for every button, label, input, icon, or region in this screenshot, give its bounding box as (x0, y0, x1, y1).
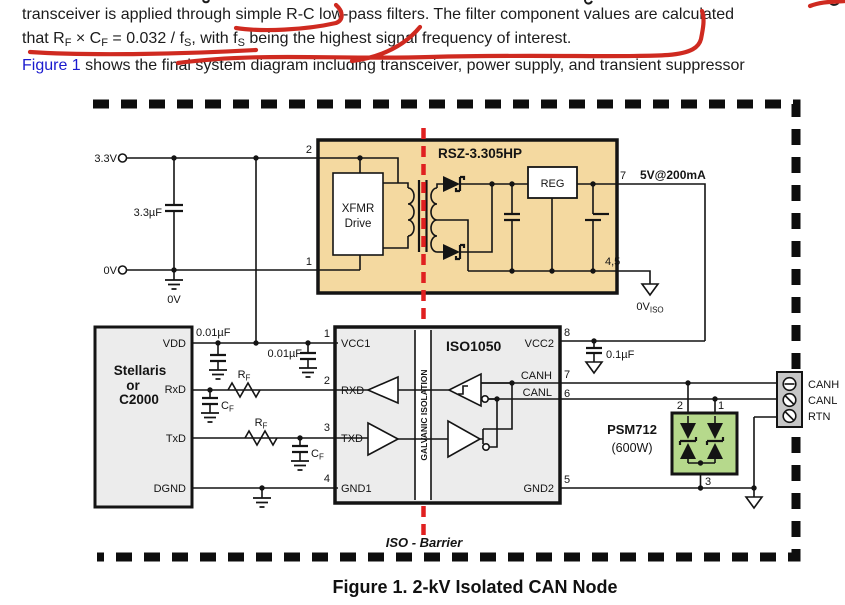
rf-resistor-rx (228, 383, 260, 397)
figure-caption: Figure 1. 2-kV Isolated CAN Node (105, 577, 845, 598)
cap-001uf-label-2: 0.01µF (268, 348, 303, 360)
transformer-primary (408, 188, 414, 236)
supply-33v-label: 3.3V (94, 153, 117, 165)
rectifier-diode-bottom (443, 244, 464, 260)
iso-ground-arrow: 0VISO (636, 284, 663, 315)
figure-1-link[interactable]: Figure 1 (22, 57, 81, 74)
inverter-bubble-rx (482, 396, 488, 402)
paragraph-figure-ref: Figure 1 shows the final system diagram … (22, 57, 745, 75)
cf-cap-tx: CF (291, 438, 324, 470)
rf-label-rx: RF (238, 369, 251, 383)
pen-underline-formula (30, 50, 256, 54)
tvs-rating: (600W) (612, 441, 653, 455)
bus-label-canl: CANL (808, 395, 837, 407)
vcc2-network: 0.1µF (560, 338, 705, 373)
tvs-name: PSM712 (607, 422, 657, 437)
mcu-title-2: or (126, 378, 140, 393)
cap-001uf-2 (299, 343, 317, 377)
tvs-body (672, 413, 737, 474)
galvanic-band (415, 330, 431, 500)
supply-input: 3.3V 0V 3.3µF 0V 2 1 (94, 144, 360, 343)
rsz-pin7: 7 (620, 170, 626, 182)
can-driver (448, 421, 480, 457)
iso-pin-7: 7 (564, 369, 570, 381)
iso-pin-1: 1 (324, 328, 330, 340)
xfmr-drive-box (333, 173, 383, 255)
bus-label-canh: CANH (808, 379, 839, 391)
bus-ground-arrow (746, 488, 762, 508)
reg-label: REG (541, 178, 565, 190)
rf-resistor-tx (245, 431, 277, 445)
iso1050-body (335, 327, 560, 503)
pin-label-vcc2: VCC2 (525, 338, 554, 350)
tvs-pin-2: 2 (677, 400, 683, 412)
cap-001uf-label-1: 0.01µF (196, 327, 231, 339)
iso-pin-4: 4 (324, 473, 330, 485)
svg-text:CF: CF (221, 400, 234, 414)
rsz-pin45: 4,5 (605, 256, 620, 268)
mcu-pin-txd: TxD (166, 433, 186, 445)
pin-label-canh: CANH (521, 370, 552, 382)
pin-label-txd: TXD (341, 433, 363, 445)
rsz-pin2: 2 (306, 144, 312, 156)
cap-01uf: 0.1µF (586, 341, 635, 373)
mcu-pin-vdd: VDD (163, 338, 186, 350)
bus-label-rtn: RTN (808, 411, 830, 423)
cap-01uf-label: 0.1µF (606, 349, 635, 361)
rectifier-diode-top (443, 176, 464, 192)
cf-cap-rx: CF (201, 390, 234, 422)
pin-label-gnd1: GND1 (341, 483, 372, 495)
mcu-title-1: Stellaris (114, 363, 167, 378)
mcu-pin-dgnd: DGND (154, 483, 186, 495)
rsz-title: RSZ-3.305HP (438, 146, 522, 161)
supply-0v-label: 0V (104, 265, 118, 277)
supply-ground: 0V (165, 270, 183, 306)
paragraph-text: transceiver is applied through simple R-… (22, 6, 734, 23)
iso1050-block: GALVANIC ISOLATION ISO1050 VCC1 RXD TXD … (324, 327, 570, 503)
module-cap-input (504, 184, 520, 271)
iso1050-title: ISO1050 (446, 338, 501, 354)
transformer-core (419, 180, 427, 252)
reg-box (528, 167, 577, 198)
inverter-bubble-tx (483, 444, 489, 450)
terminal-body (777, 372, 802, 427)
xfmr-label-1: XFMR (342, 203, 375, 215)
mcu-title-3: C2000 (119, 392, 159, 407)
pin-label-canl: CANL (523, 387, 552, 399)
mcu-block: Stellaris or C2000 VDD RxD TxD DGND (95, 327, 192, 507)
tvs-pin-3: 3 (705, 476, 711, 488)
paragraph-filters: transceiver is applied through simple R-… (22, 6, 734, 24)
iso-pin-3: 3 (324, 422, 330, 434)
terminal-33v (119, 154, 127, 162)
tvs-diode-right (707, 423, 723, 459)
terminal-block: CANH CANL RTN (777, 372, 839, 427)
rsz-pin1: 1 (306, 256, 312, 268)
galvanic-isolation-label: GALVANIC ISOLATION (419, 369, 429, 460)
clipped-text-fragments (203, 0, 839, 5)
pen-fragment-top-right (810, 1, 845, 6)
xfmr-label-2: Drive (345, 218, 372, 230)
circuit-figure: RSZ-3.305HP XFMR Drive (0, 0, 845, 605)
rsz-power-module: RSZ-3.305HP XFMR Drive (318, 140, 706, 341)
rxd-buffer (368, 377, 398, 403)
screw-terminal-canh (783, 378, 796, 391)
screw-terminal-rtn (783, 410, 796, 423)
pin-label-rxd: RXD (341, 385, 364, 397)
rsz-module-body (318, 140, 617, 293)
tvs-pin-1: 1 (718, 400, 724, 412)
transformer-secondary (431, 188, 437, 252)
svg-text:3.3µF: 3.3µF (134, 207, 163, 219)
pin-label-vcc1: VCC1 (341, 338, 370, 350)
document-page: transceiver is applied through simple R-… (0, 0, 845, 605)
can-bus-wiring (481, 380, 783, 508)
tvs-diode-left (680, 423, 696, 459)
paragraph-formula: that RF × CF = 0.032 / fS, with fS being… (22, 30, 571, 48)
rtn-wire (754, 417, 783, 488)
module-cap-output (585, 184, 609, 271)
svg-text:CF: CF (311, 448, 324, 462)
txd-buffer (368, 423, 398, 455)
bulk-cap-33uf: 3.3µF (134, 158, 183, 270)
iso-pin-5: 5 (564, 474, 570, 486)
iso-pin-2: 2 (324, 375, 330, 387)
dashed-frame (93, 104, 796, 557)
iso-pin-6: 6 (564, 388, 570, 400)
filter-network: 0.01µF 0.01µF CF RF (192, 327, 338, 507)
can-receiver (449, 374, 481, 406)
tvs-psm712: 2 1 3 PSM712 (600W) (607, 383, 737, 488)
iso-pin-8: 8 (564, 327, 570, 339)
iso-barrier-label: ISO - Barrier (386, 535, 464, 550)
mcu-body (95, 327, 192, 507)
mcu-pin-rxd: RxD (165, 384, 186, 396)
cap-001uf-1 (209, 343, 227, 379)
pin-label-gnd2: GND2 (523, 483, 554, 495)
terminal-0v (119, 266, 127, 274)
dgnd-ground (253, 488, 271, 507)
rf-label-tx: RF (255, 417, 268, 431)
svg-text:0VISO: 0VISO (636, 301, 663, 315)
svg-text:0V: 0V (167, 294, 181, 306)
rsz-output-label: 5V@200mA (640, 168, 706, 182)
screw-terminal-canl (783, 394, 796, 407)
